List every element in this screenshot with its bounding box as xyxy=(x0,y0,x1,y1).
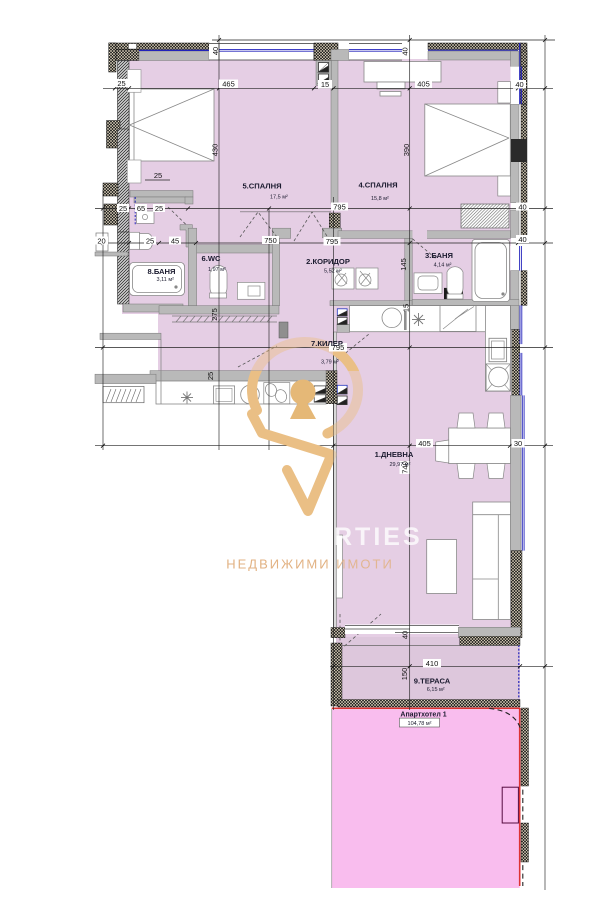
svg-text:3.БАНЯ: 3.БАНЯ xyxy=(425,251,453,260)
svg-text:104,78 м²: 104,78 м² xyxy=(408,721,432,727)
svg-text:25: 25 xyxy=(154,171,162,180)
svg-text:5.СПАЛНЯ: 5.СПАЛНЯ xyxy=(242,182,281,191)
svg-text:25: 25 xyxy=(119,204,127,213)
svg-text:45: 45 xyxy=(171,237,179,246)
svg-text:7.КИЛЕР: 7.КИЛЕР xyxy=(311,339,343,348)
svg-text:145: 145 xyxy=(399,258,408,271)
svg-text:3,79 м²: 3,79 м² xyxy=(321,359,339,365)
svg-text:40: 40 xyxy=(401,631,410,639)
svg-text:40: 40 xyxy=(401,47,410,55)
svg-text:795: 795 xyxy=(333,203,346,212)
svg-text:405: 405 xyxy=(418,439,431,448)
svg-text:275: 275 xyxy=(210,308,219,321)
svg-text:15,8 м²: 15,8 м² xyxy=(371,196,389,202)
svg-text:40: 40 xyxy=(518,203,526,212)
svg-text:150: 150 xyxy=(400,668,409,681)
svg-text:25: 25 xyxy=(206,372,215,380)
svg-text:3,11 м²: 3,11 м² xyxy=(157,277,175,283)
svg-text:29,97 м²: 29,97 м² xyxy=(390,462,411,468)
svg-text:RTIES: RTIES xyxy=(334,523,423,551)
svg-text:Апартхотел 1: Апартхотел 1 xyxy=(400,711,446,718)
svg-text:1.ДНЕВНА: 1.ДНЕВНА xyxy=(375,450,414,459)
svg-text:2.КОРИДОР: 2.КОРИДОР xyxy=(306,257,350,266)
svg-text:390: 390 xyxy=(402,144,411,157)
svg-text:20: 20 xyxy=(97,237,105,246)
svg-text:25: 25 xyxy=(117,79,125,88)
svg-text:40: 40 xyxy=(211,47,220,55)
svg-text:40: 40 xyxy=(518,235,526,244)
svg-text:5,52 м²: 5,52 м² xyxy=(324,269,342,275)
svg-text:15: 15 xyxy=(321,80,329,89)
svg-text:795: 795 xyxy=(326,237,339,246)
svg-text:15: 15 xyxy=(402,304,411,312)
svg-text:17,5 м²: 17,5 м² xyxy=(270,195,288,201)
svg-text:6.WC: 6.WC xyxy=(202,254,222,263)
svg-text:40: 40 xyxy=(515,80,523,89)
svg-text:405: 405 xyxy=(417,80,430,89)
svg-text:750: 750 xyxy=(264,236,277,245)
svg-text:25: 25 xyxy=(146,237,154,246)
svg-text:4.СПАЛНЯ: 4.СПАЛНЯ xyxy=(358,181,397,190)
svg-text:6,15 м²: 6,15 м² xyxy=(427,687,445,693)
svg-text:9.ТЕРАСА: 9.ТЕРАСА xyxy=(414,676,451,685)
svg-text:65: 65 xyxy=(137,204,145,213)
svg-text:410: 410 xyxy=(426,659,439,668)
svg-text:4,14 м²: 4,14 м² xyxy=(434,263,452,269)
svg-text:30: 30 xyxy=(514,439,522,448)
svg-text:8.БАНЯ: 8.БАНЯ xyxy=(148,267,176,276)
svg-text:465: 465 xyxy=(222,80,235,89)
svg-text:430: 430 xyxy=(211,144,220,157)
svg-text:1,97 м²: 1,97 м² xyxy=(208,267,226,273)
svg-text:25: 25 xyxy=(155,204,163,213)
